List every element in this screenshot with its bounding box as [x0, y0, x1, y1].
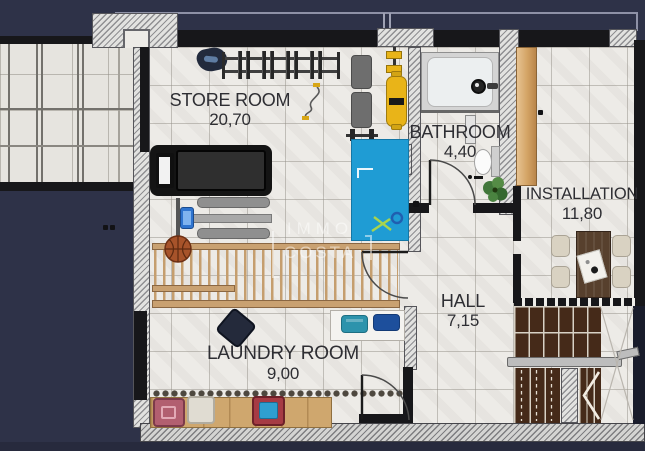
shower-head-highlight: [475, 83, 479, 87]
stair-dashed-lines: [522, 370, 552, 421]
room-label-installation: INSTALLATION 11,80: [502, 184, 645, 224]
resistance-ring: [392, 213, 402, 223]
room-name: BATHROOM: [400, 122, 520, 142]
room-area: 9,00: [178, 364, 388, 384]
watermark-bracket-left: [272, 231, 279, 278]
room-area: 11,80: [502, 204, 645, 224]
stair-arrow: [584, 372, 599, 419]
room-label-store-room: STORE ROOM 20,70: [150, 90, 310, 130]
room-area: 20,70: [150, 110, 310, 130]
floor-plan: STORE ROOM 20,70 BATHROOM 4,40 INSTALLAT…: [0, 0, 645, 451]
room-area: 7,15: [421, 311, 505, 331]
room-name: HALL: [421, 291, 505, 311]
room-name: STORE ROOM: [150, 90, 310, 110]
room-label-hall: HALL 7,15: [421, 291, 505, 331]
room-label-laundry-room: LAUNDRY ROOM 9,00: [178, 344, 388, 384]
basketball: [165, 236, 191, 262]
room-area: 4,40: [400, 142, 520, 162]
room-name: INSTALLATION: [502, 184, 645, 204]
room-label-bathroom: BATHROOM 4,40: [400, 122, 520, 162]
room-name: LAUNDRY ROOM: [178, 344, 388, 364]
bathroom-door: [430, 160, 475, 205]
landing-diagonals: [601, 308, 633, 420]
watermark-bracket-right: [365, 235, 372, 260]
